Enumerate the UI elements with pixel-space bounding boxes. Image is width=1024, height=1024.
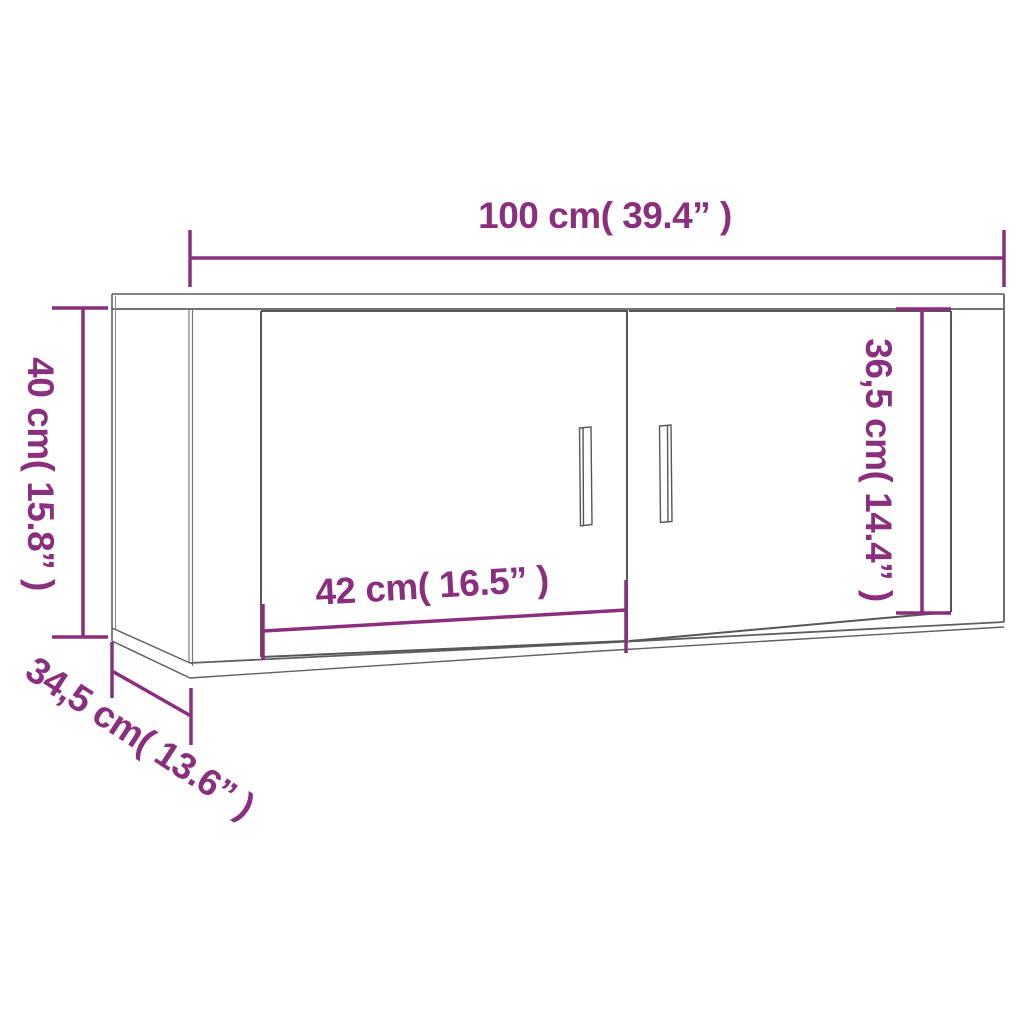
left-door-handle — [580, 427, 593, 526]
height-dimension-label: 40 cm( 15.8” ) — [19, 357, 61, 591]
width-dimension-label: 100 cm( 39.4” ) — [478, 195, 732, 237]
right-door-handle — [660, 425, 673, 523]
door-height-dimension-line — [896, 309, 951, 613]
right-door — [629, 311, 951, 641]
door-height-dimension-label: 36,5 cm( 14.4” ) — [857, 338, 899, 601]
width-dimension-line — [190, 230, 1004, 287]
dimension-diagram: 100 cm( 39.4” ) 40 cm( 15.8” ) 36,5 cm( … — [0, 0, 1024, 1024]
